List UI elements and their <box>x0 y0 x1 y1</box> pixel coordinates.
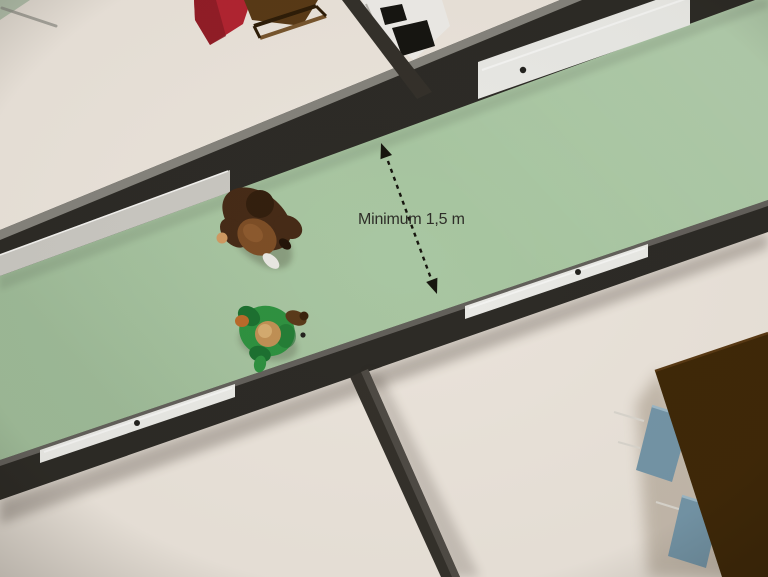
vignette-overlay <box>0 0 768 577</box>
scene-viewport[interactable]: Minimum 1,5 m <box>0 0 768 577</box>
scene-stage: Minimum 1,5 m <box>0 0 768 577</box>
